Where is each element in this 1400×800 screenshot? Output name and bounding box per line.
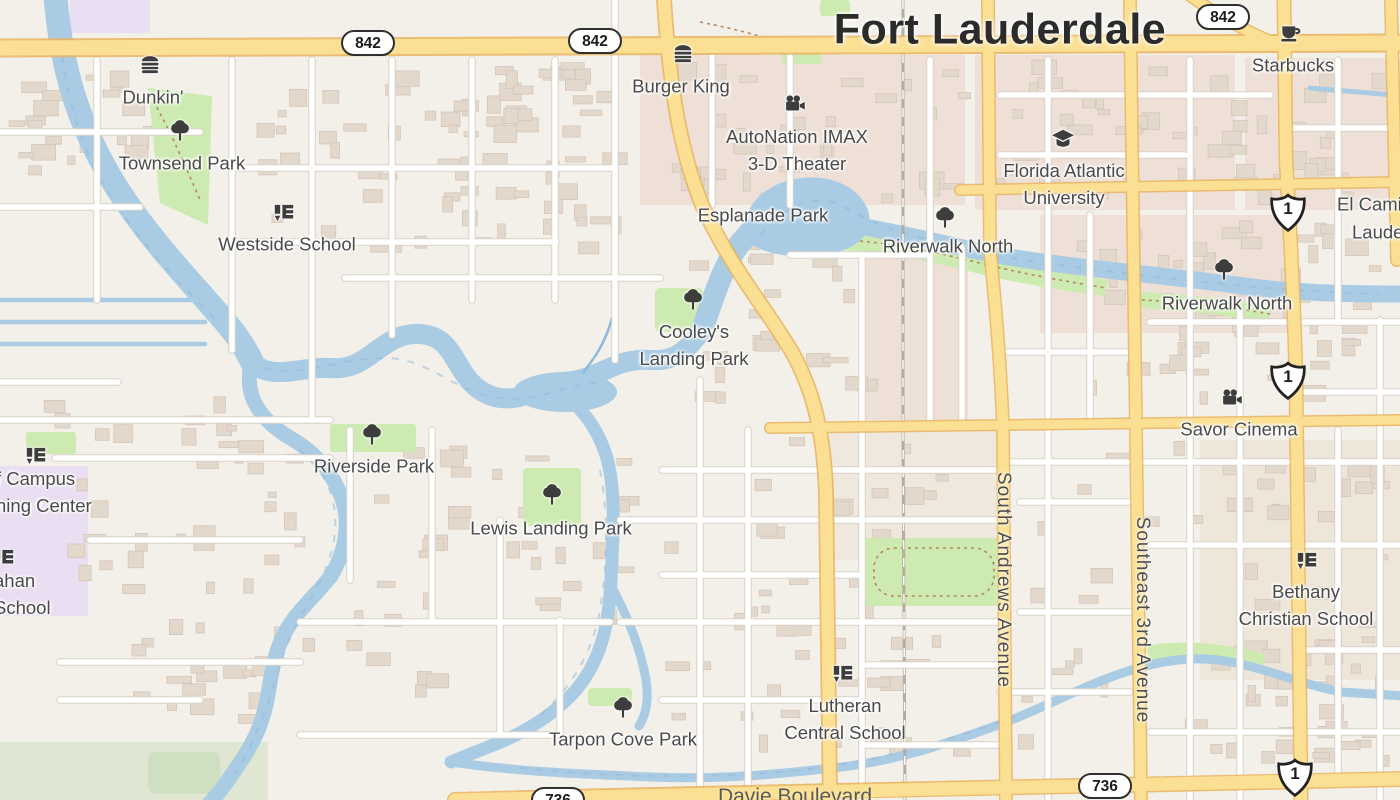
cafe-icon bbox=[1278, 21, 1304, 47]
poi-label-dunkin: Dunkin' bbox=[122, 84, 183, 111]
street-label-davie-boulevard: Davie Boulevard bbox=[718, 785, 872, 800]
poi-label-el-cami: El Cami bbox=[1337, 191, 1400, 218]
school-icon bbox=[271, 200, 297, 226]
poi-label-burger-king: Burger King bbox=[632, 73, 730, 100]
tree-icon bbox=[167, 118, 193, 144]
poi-label-cooleys-landing-park: Cooley'sLanding Park bbox=[639, 318, 748, 372]
cinema-icon bbox=[782, 91, 808, 117]
poi-label-lutheran-central-school: LutheranCentral School bbox=[784, 692, 905, 746]
fast-food-icon bbox=[670, 40, 696, 66]
poi-label-laude: Laude bbox=[1352, 219, 1400, 246]
poi-label-campus-learning-center: f Campusning Center bbox=[0, 465, 92, 519]
tree-icon bbox=[1211, 257, 1237, 283]
poi-label-riverwalk-north-1: Riverwalk North bbox=[883, 233, 1014, 260]
poi-label-townsend-park: Townsend Park bbox=[119, 150, 245, 177]
poi-label-westside-school: Westside School bbox=[218, 231, 355, 258]
route-shield-us-1: 1 bbox=[1274, 757, 1316, 799]
cinema-icon bbox=[1219, 385, 1245, 411]
poi-label-esplanade-park: Esplanade Park bbox=[698, 202, 829, 229]
poi-label-riverside-park: Riverside Park bbox=[314, 453, 434, 480]
city-label: Fort Lauderdale bbox=[834, 6, 1166, 55]
poi-label-riverwalk-north-2: Riverwalk North bbox=[1162, 290, 1293, 317]
map-tiles bbox=[0, 0, 1400, 800]
university-icon bbox=[1050, 126, 1076, 152]
route-shield-842: 842 bbox=[568, 28, 622, 54]
route-shield-842: 842 bbox=[1196, 4, 1250, 30]
poi-label-tarpon-cove-park: Tarpon Cove Park bbox=[549, 726, 697, 753]
tree-icon bbox=[359, 422, 385, 448]
fast-food-icon bbox=[137, 51, 163, 77]
poi-label-lewis-landing-park: Lewis Landing Park bbox=[470, 515, 631, 542]
tree-icon bbox=[932, 205, 958, 231]
route-shield-842: 842 bbox=[341, 30, 395, 56]
poi-label-bethany-christian-school: BethanyChristian School bbox=[1239, 578, 1374, 632]
tree-icon bbox=[680, 287, 706, 313]
school-icon bbox=[830, 661, 856, 687]
poi-label-ahan-school: ahanSchool bbox=[0, 567, 51, 621]
tree-icon bbox=[539, 482, 565, 508]
tree-icon bbox=[610, 695, 636, 721]
poi-label-starbucks: Starbucks bbox=[1252, 52, 1334, 79]
route-shield-736: 736 bbox=[1078, 773, 1132, 799]
poi-label-autonation-imax: AutoNation IMAX3-D Theater bbox=[726, 123, 868, 177]
poi-label-florida-atlantic-university: Florida AtlanticUniversity bbox=[1003, 157, 1124, 211]
street-label-south-andrews-avenue: South Andrews Avenue bbox=[992, 472, 1014, 688]
route-shield-us-1: 1 bbox=[1267, 360, 1309, 402]
poi-label-savor-cinema: Savor Cinema bbox=[1180, 416, 1297, 443]
route-shield-us-1: 1 bbox=[1267, 192, 1309, 234]
route-shield-736: 736 bbox=[531, 787, 585, 800]
school-icon bbox=[1294, 548, 1320, 574]
map-canvas[interactable]: Fort Lauderdale Dunkin' Townsend Park We… bbox=[0, 0, 1400, 800]
street-label-southeast-3rd-avenue: Southeast 3rd Avenue bbox=[1131, 517, 1153, 724]
